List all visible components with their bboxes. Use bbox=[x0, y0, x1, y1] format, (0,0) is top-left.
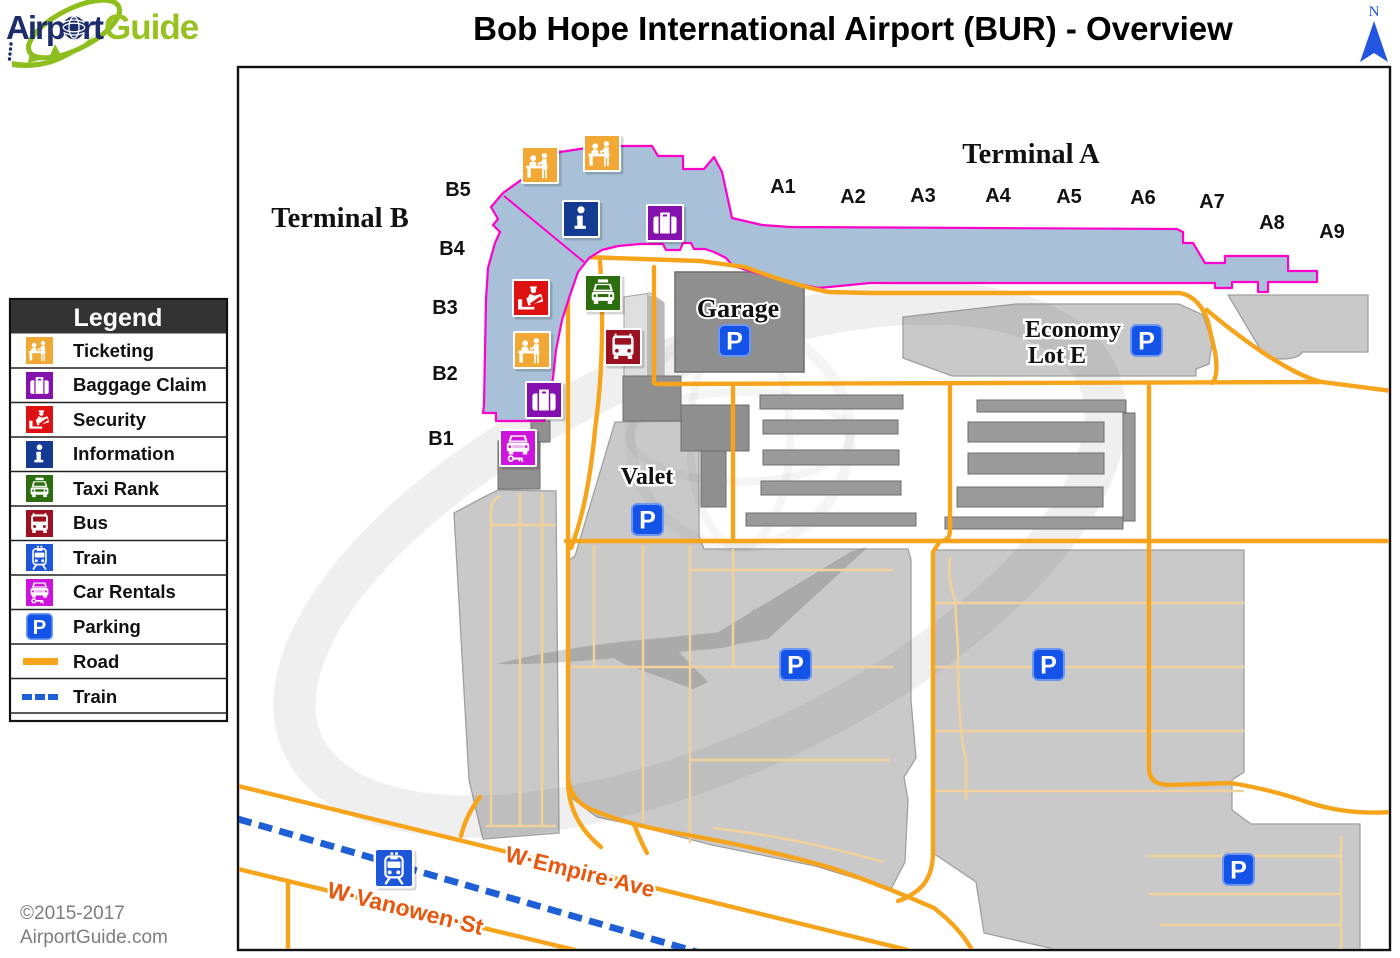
svg-text:Train: Train bbox=[73, 547, 117, 568]
svg-text:Car Rentals: Car Rentals bbox=[73, 581, 176, 602]
svg-text:Bob Hope International Airport: Bob Hope International Airport (BUR) - O… bbox=[473, 10, 1233, 47]
svg-text:Lot E: Lot E bbox=[1028, 343, 1086, 369]
svg-text:Parking: Parking bbox=[73, 616, 141, 637]
svg-text:B3: B3 bbox=[432, 297, 458, 319]
svg-text:Bus: Bus bbox=[73, 512, 108, 533]
svg-text:Information: Information bbox=[73, 443, 175, 464]
svg-text:B5: B5 bbox=[445, 179, 471, 201]
svg-text:Taxi Rank: Taxi Rank bbox=[73, 478, 160, 499]
svg-text:B2: B2 bbox=[432, 363, 458, 385]
svg-text:A2: A2 bbox=[840, 186, 866, 208]
svg-text:A1: A1 bbox=[770, 176, 796, 198]
svg-text:Economy: Economy bbox=[1025, 317, 1121, 343]
svg-text:Airport: Airport bbox=[6, 9, 104, 46]
svg-text:Ticketing: Ticketing bbox=[73, 340, 154, 361]
svg-text:Road: Road bbox=[73, 651, 119, 672]
svg-text:A6: A6 bbox=[1130, 187, 1156, 209]
svg-text:Legend: Legend bbox=[74, 304, 163, 332]
svg-text:AirportGuide.com: AirportGuide.com bbox=[20, 927, 168, 948]
svg-text:A7: A7 bbox=[1199, 191, 1225, 213]
svg-text:Terminal B: Terminal B bbox=[271, 203, 409, 234]
svg-text:A9: A9 bbox=[1319, 221, 1345, 243]
svg-text:A8: A8 bbox=[1259, 212, 1285, 234]
svg-text:Security: Security bbox=[73, 409, 147, 430]
svg-text:B4: B4 bbox=[439, 238, 465, 260]
svg-text:Terminal A: Terminal A bbox=[962, 139, 1100, 170]
svg-text:A4: A4 bbox=[985, 185, 1011, 207]
svg-text:Guide: Guide bbox=[104, 8, 199, 47]
svg-text:Baggage Claim: Baggage Claim bbox=[73, 374, 207, 395]
svg-text:Valet: Valet bbox=[621, 464, 673, 490]
svg-text:A5: A5 bbox=[1056, 186, 1082, 208]
svg-text:A3: A3 bbox=[910, 185, 936, 207]
svg-text:Train: Train bbox=[73, 686, 117, 707]
svg-text:N: N bbox=[1369, 4, 1380, 20]
svg-text:B1: B1 bbox=[428, 428, 454, 450]
svg-text:Garage: Garage bbox=[697, 294, 779, 323]
svg-text:©2015-2017: ©2015-2017 bbox=[20, 903, 125, 924]
